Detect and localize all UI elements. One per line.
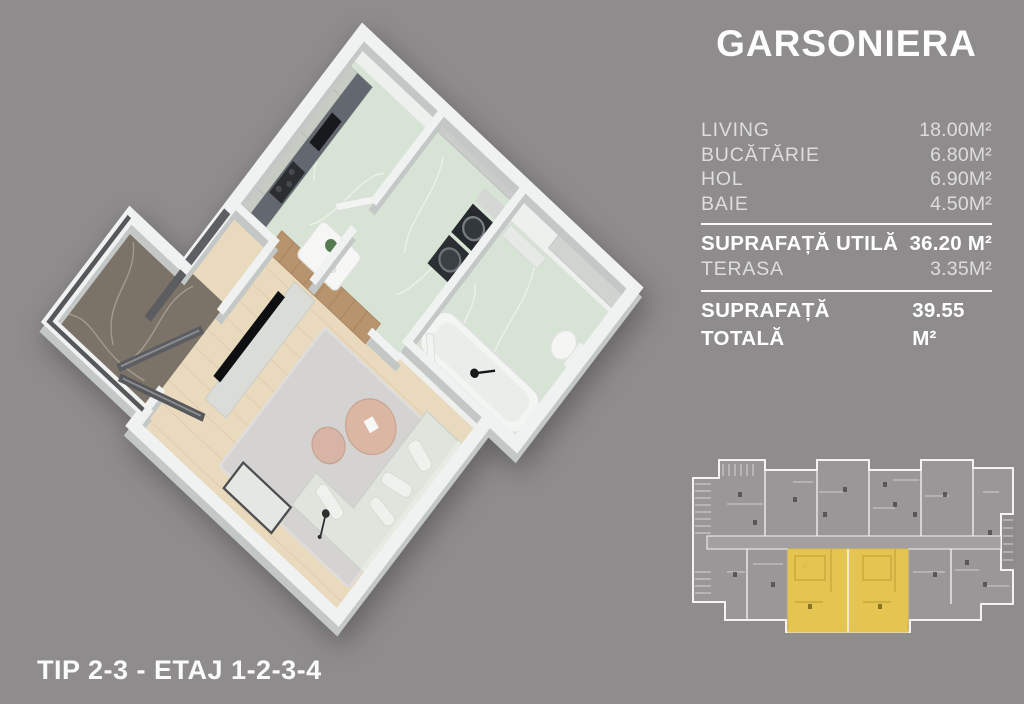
room-area-value: 4.50M² [930, 192, 992, 217]
area-row-living: LIVING 18.00M² [701, 118, 992, 143]
highlighted-units [788, 549, 908, 632]
separator-line [701, 290, 992, 292]
area-row-bucatarie: BUCĂTĂRIE 6.80M² [701, 143, 992, 168]
area-row-hol: HOL 6.90M² [701, 167, 992, 192]
page-background: { "title": "GARSONIERA", "caption": "TIP… [0, 0, 1024, 704]
page-title: GARSONIERA [701, 24, 992, 64]
room-label: BUCĂTĂRIE [701, 143, 820, 168]
room-label: BAIE [701, 192, 749, 217]
terrace-value: 3.35M² [930, 257, 992, 282]
total-row: SUPRAFAȚĂ TOTALĂ 39.55 M² [701, 297, 992, 353]
apartment-3d-floorplan [0, 0, 700, 704]
room-area-value: 6.80M² [930, 143, 992, 168]
area-row-baie: BAIE 4.50M² [701, 192, 992, 217]
building-floor-minimap [683, 452, 1023, 636]
room-label: LIVING [701, 118, 770, 143]
room-area-value: 6.90M² [930, 167, 992, 192]
info-panel: GARSONIERA LIVING 18.00M² BUCĂTĂRIE 6.80… [701, 24, 992, 353]
separator-line [701, 223, 992, 225]
subtotal-label: SUPRAFAȚĂ UTILĂ [701, 231, 898, 257]
subtotal-value: 36.20 M² [910, 231, 993, 257]
area-table: LIVING 18.00M² BUCĂTĂRIE 6.80M² HOL 6.90… [701, 118, 992, 353]
minimap-corridor [707, 536, 1001, 549]
subtotal-row: SUPRAFAȚĂ UTILĂ 36.20 M² [701, 231, 992, 257]
terrace-label: TERASA [701, 257, 784, 282]
terrace-row: TERASA 3.35M² [701, 257, 992, 282]
total-value: 39.55 M² [912, 297, 992, 353]
room-label: HOL [701, 167, 744, 192]
total-label: SUPRAFAȚĂ TOTALĂ [701, 297, 912, 353]
floor-type-caption: TIP 2-3 - ETAJ 1-2-3-4 [37, 655, 322, 686]
room-area-value: 18.00M² [919, 118, 992, 143]
